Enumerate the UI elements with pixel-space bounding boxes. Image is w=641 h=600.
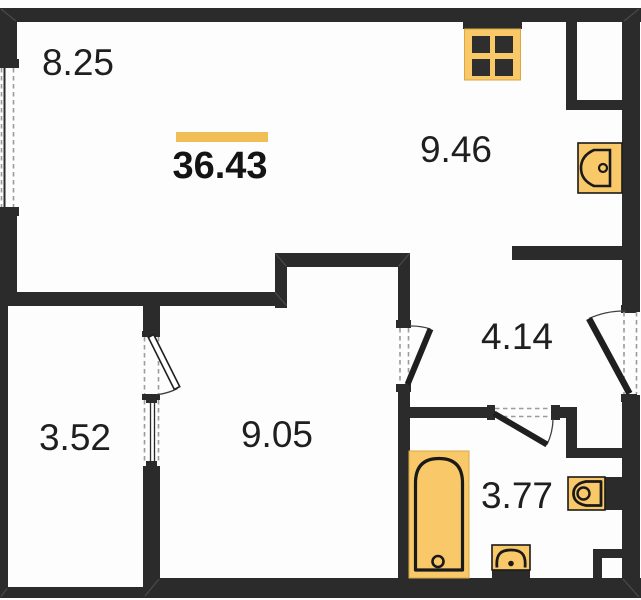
total-area-underline [176, 132, 268, 142]
bathroom-door [494, 409, 553, 445]
wall-segment [275, 253, 410, 267]
room-area-label-bathroom: 3.77 [481, 475, 553, 516]
room-area-label-bedroom: 9.05 [241, 414, 313, 455]
sink-drain [508, 561, 514, 567]
wall-segment [398, 392, 410, 598]
area-labels: 36.43 8.25 9.46 4.14 3.52 9.05 3.77 [39, 42, 553, 516]
total-area-label: 36.43 [172, 145, 267, 187]
wall-segment [143, 466, 160, 598]
window-sill [0, 207, 19, 216]
door-leaf [408, 329, 431, 385]
wall-segment [0, 587, 160, 598]
window-tick [146, 398, 157, 403]
duct-niche-wall [566, 22, 577, 110]
bathroom-sink-icon [492, 545, 530, 578]
window-tick [146, 461, 157, 466]
entry-door-hinge [621, 394, 637, 402]
door-hinge [551, 405, 560, 420]
wall-segment [0, 306, 8, 598]
wall-segment [512, 246, 622, 260]
bedroom-door [400, 326, 431, 385]
door-swing-arc [547, 419, 553, 445]
sink-base [492, 570, 530, 578]
duct-niche-wall [566, 448, 623, 458]
room-area-label-storage: 3.52 [39, 417, 111, 458]
room-area-label-kitchen: 9.46 [420, 129, 492, 170]
stove-burner [472, 36, 490, 53]
door-leaf-panel [148, 335, 179, 390]
wall-segment [622, 395, 640, 598]
door-hinge [396, 384, 411, 392]
wall-segment [143, 306, 160, 331]
kitchen-sink-icon [578, 143, 622, 193]
window-sill [0, 59, 19, 68]
stove-burner [495, 59, 513, 76]
door-swing-arc [589, 311, 626, 319]
door-hinge [487, 405, 495, 420]
duct-niche-wall [566, 100, 623, 110]
stove-burner [495, 36, 513, 53]
toilet-icon [568, 477, 605, 510]
entry-door [589, 311, 637, 394]
stove-burner [472, 59, 490, 76]
storage-door [145, 335, 180, 395]
wall-segment [410, 407, 494, 418]
stove-icon [463, 21, 522, 80]
exterior-window [2, 68, 14, 207]
interior-window [145, 400, 159, 464]
plumbing-wall [605, 477, 622, 510]
room-area-label-living: 8.25 [42, 42, 114, 83]
door-swing-arc [410, 326, 431, 329]
stove-back-bar [463, 21, 522, 29]
door-hinge [396, 320, 411, 328]
entry-door-hinge [621, 305, 637, 313]
room-area-label-hallway: 4.14 [481, 316, 553, 357]
wall-segment [0, 292, 287, 306]
shaft-wall [593, 549, 602, 598]
wall-segment [0, 8, 641, 22]
wall-segment [560, 407, 577, 418]
floorplan-svg: 36.43 8.25 9.46 4.14 3.52 9.05 3.77 [0, 0, 641, 600]
wall-segment [622, 22, 640, 312]
door-leaf [494, 414, 547, 445]
bathtub-icon [409, 451, 469, 578]
wall-segment [398, 253, 410, 320]
floorplan-viewport: 36.43 8.25 9.46 4.14 3.52 9.05 3.77 [0, 0, 641, 600]
wall-segment [0, 22, 17, 59]
